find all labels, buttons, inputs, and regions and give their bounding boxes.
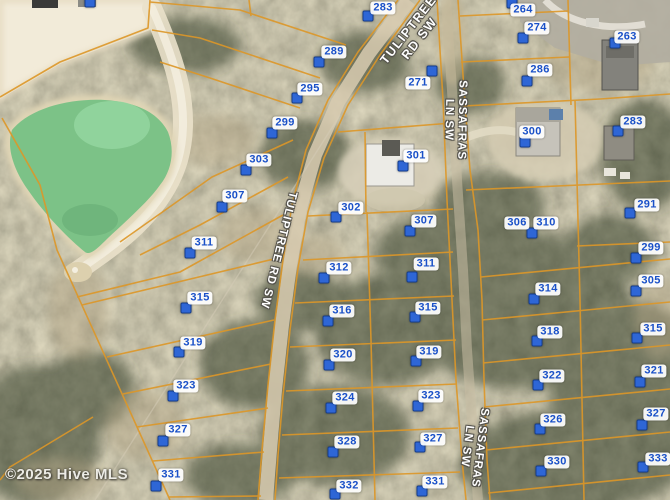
lot-label[interactable]: 332 [336,480,361,493]
lot-marker[interactable] [158,436,169,447]
lot-label[interactable]: 324 [332,392,357,405]
lot-label[interactable]: 318 [537,326,562,339]
lot-label[interactable]: 315 [187,292,212,305]
road-label-sassafras-top: SASSAFRASLN SW [441,80,468,160]
lot-label[interactable]: 305 [638,275,663,288]
copyright-text: ©2025 Hive MLS [5,466,128,483]
lot-label[interactable]: 327 [165,424,190,437]
lot-label[interactable]: 319 [416,346,441,359]
lot-label[interactable]: 320 [330,349,355,362]
lot-label[interactable]: 312 [326,262,351,275]
lot-label[interactable]: 323 [418,390,443,403]
lot-label[interactable]: 315 [640,323,665,336]
lot-label[interactable]: 311 [192,237,217,250]
lot-label[interactable]: 300 [519,126,544,139]
aerial-imagery [0,0,670,500]
lot-label[interactable]: 328 [334,436,359,449]
lot-label[interactable]: 295 [297,83,322,96]
lot-label[interactable]: 330 [544,456,569,469]
lot-label[interactable]: 283 [370,2,395,15]
lot-marker[interactable] [407,272,418,283]
lot-label[interactable]: 307 [222,190,247,203]
lot-label[interactable]: 327 [420,433,445,446]
lot-label[interactable]: 264 [510,4,535,17]
lot-label[interactable]: 333 [645,453,670,466]
lot-label[interactable]: 319 [180,337,205,350]
lot-label[interactable]: 303 [246,154,271,167]
lot-label[interactable]: 327 [643,408,668,421]
lot-label[interactable]: 289 [321,46,346,59]
lot-marker[interactable] [85,0,96,8]
lot-label[interactable]: 299 [272,117,297,130]
lot-label[interactable]: 263 [614,31,639,44]
lot-label[interactable]: 302 [338,202,363,215]
lot-label[interactable]: 301 [403,150,428,163]
lot-marker[interactable] [637,420,648,431]
lot-label[interactable]: 271 [405,77,430,90]
lot-marker[interactable] [635,377,646,388]
lot-label[interactable]: 323 [173,380,198,393]
lot-label[interactable]: 314 [535,283,560,296]
lot-label[interactable]: 322 [539,370,564,383]
lot-label[interactable]: 331 [158,469,183,482]
lot-label[interactable]: 286 [527,64,552,77]
lot-label[interactable]: 310 [533,217,558,230]
lot-marker[interactable] [151,481,162,492]
lot-marker[interactable] [427,66,438,77]
lot-label[interactable]: 307 [411,215,436,228]
lot-label[interactable]: 311 [414,258,439,271]
lot-label[interactable]: 306 [504,217,529,230]
lot-label[interactable]: 274 [524,22,549,35]
lot-label[interactable]: 326 [540,414,565,427]
lot-label[interactable]: 291 [634,199,659,212]
map-canvas[interactable]: ©2025 Hive MLS 2832892952993033073113153… [0,0,670,500]
lot-label[interactable]: 283 [620,116,645,129]
lot-label[interactable]: 331 [422,476,447,489]
lot-marker[interactable] [522,76,533,87]
lot-label[interactable]: 321 [641,365,666,378]
lot-label[interactable]: 315 [415,302,440,315]
lot-label[interactable]: 316 [329,305,354,318]
road-label-line: SASSAFRAS [454,80,468,160]
lot-label[interactable]: 299 [638,242,663,255]
lot-marker[interactable] [217,202,228,213]
